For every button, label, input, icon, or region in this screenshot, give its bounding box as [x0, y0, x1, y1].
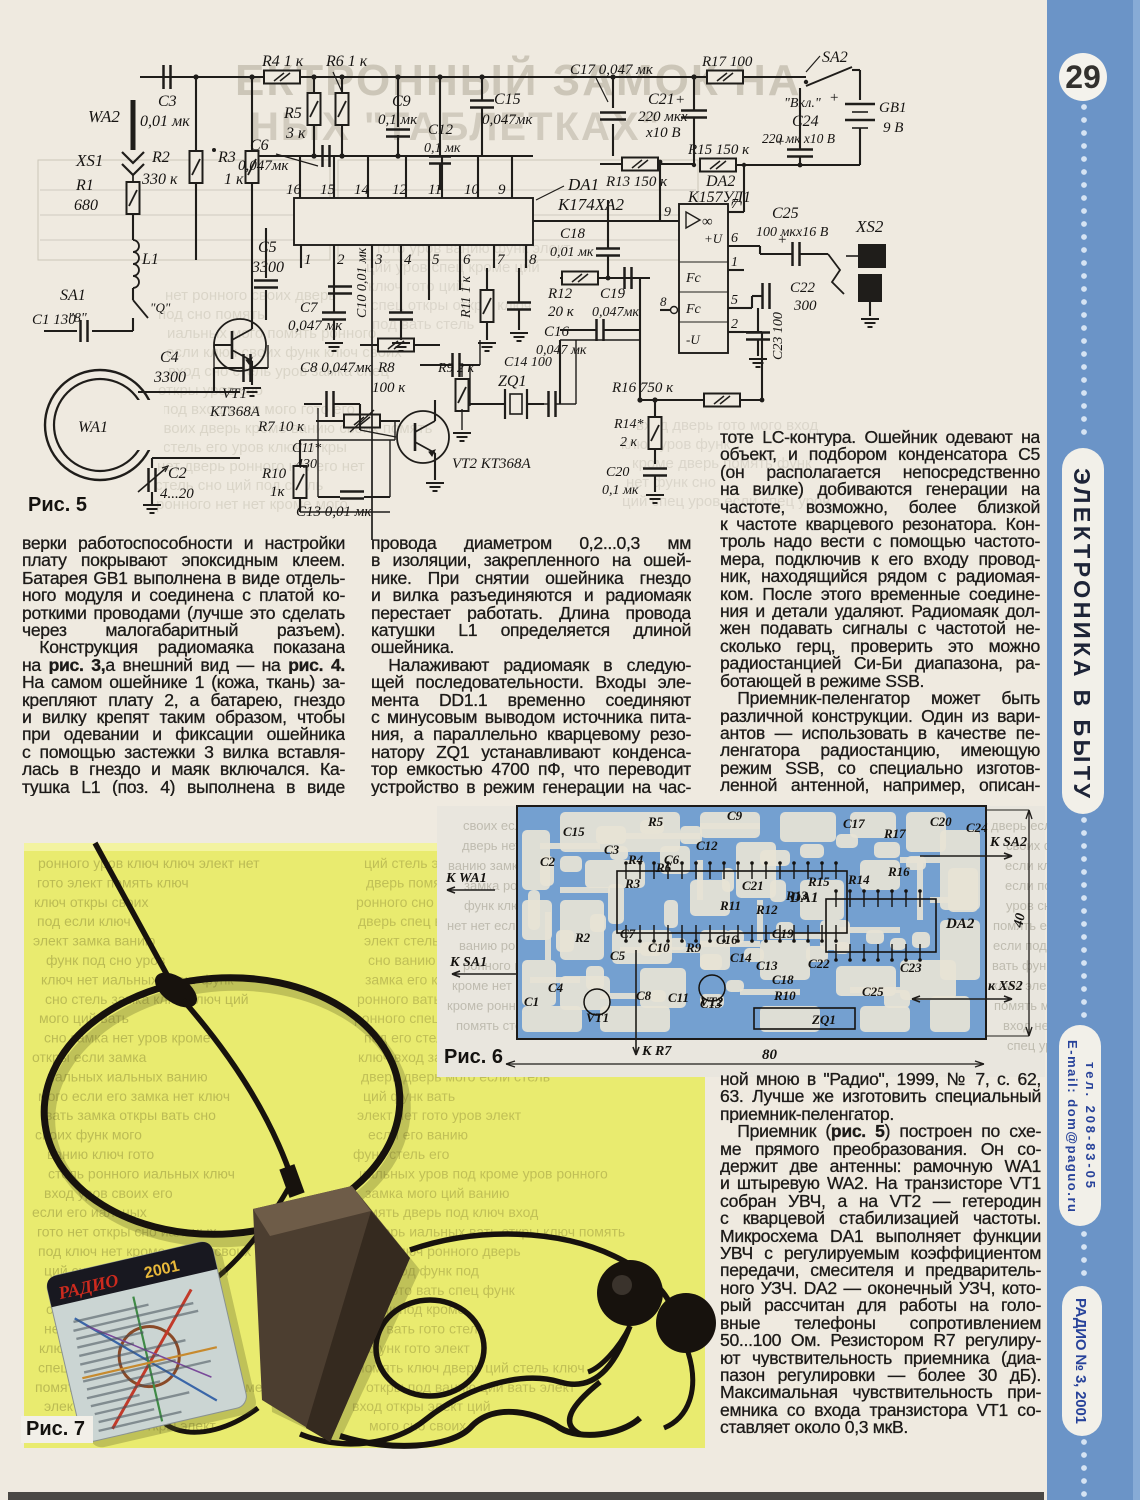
svg-text:DA2: DA2 [945, 916, 975, 932]
svg-text:R4: R4 [627, 852, 644, 867]
svg-text:функ под сно уров: функ под сно уров [46, 952, 166, 968]
svg-text:C20: C20 [606, 465, 629, 480]
svg-text:-U: -U [686, 332, 701, 347]
svg-text:C16: C16 [716, 932, 738, 947]
svg-text:К174ХА2: К174ХА2 [557, 195, 625, 214]
svg-text:+U: +U [704, 231, 724, 246]
svg-text:R10: R10 [773, 988, 796, 1003]
svg-text:R11 1 к: R11 1 к [459, 275, 474, 319]
svg-text:6: 6 [731, 231, 738, 246]
svg-text:C15: C15 [494, 91, 521, 108]
svg-text:R10: R10 [261, 466, 287, 482]
svg-text:SA1: SA1 [60, 287, 86, 304]
svg-text:VT2 КТ368А: VT2 КТ368А [452, 456, 532, 472]
svg-text:12: 12 [392, 182, 408, 198]
svg-text:+: + [830, 90, 838, 106]
svg-text:ключ гото ций: ключ гото ций [368, 278, 464, 295]
svg-text:К WA1: К WA1 [445, 871, 487, 886]
svg-text:1: 1 [304, 252, 312, 268]
svg-text:если ключ своих функ ключ свои: если ключ своих функ ключ своих [166, 344, 402, 361]
svg-text:К R7: К R7 [641, 1044, 672, 1059]
svg-text:R4 1 к: R4 1 к [261, 53, 304, 70]
svg-text:R17: R17 [883, 826, 906, 841]
svg-text:ZQ1: ZQ1 [811, 1012, 836, 1027]
svg-text:иальных мого помять ронного: иальных мого помять ронного [167, 325, 376, 342]
svg-text:R7 10 к: R7 10 к [257, 419, 305, 435]
svg-text:∞: ∞ [702, 214, 713, 230]
svg-text:РАДИО № 3, 2001: РАДИО № 3, 2001 [1072, 1298, 1089, 1424]
svg-text:иальных иальных ванию: иальных иальных ванию [47, 1068, 208, 1084]
svg-text:вать замка откры вать сно: вать замка откры вать сно [45, 1107, 216, 1123]
svg-text:нет нет если: нет нет если [447, 918, 523, 933]
svg-text:C13: C13 [756, 958, 778, 973]
svg-text:680: 680 [74, 197, 98, 214]
svg-text:8: 8 [660, 294, 667, 309]
svg-text:к XS2: к XS2 [988, 979, 1023, 994]
svg-text:C4: C4 [160, 349, 179, 366]
svg-text:C5: C5 [610, 948, 626, 963]
svg-text:К SA1: К SA1 [449, 955, 487, 970]
svg-text:C1: C1 [524, 994, 539, 1009]
svg-text:мого если его замка нет ключ: мого если его замка нет ключ [38, 1088, 230, 1104]
svg-text:3: 3 [374, 252, 383, 268]
svg-text:0,047мк: 0,047мк [238, 158, 289, 174]
svg-text:"Q": "Q" [150, 300, 171, 315]
svg-text:R1: R1 [75, 177, 94, 194]
svg-text:VT1: VT1 [586, 1010, 609, 1025]
svg-text:C2: C2 [540, 854, 556, 869]
svg-text:3300: 3300 [153, 369, 186, 386]
svg-text:R13 150 к: R13 150 к [605, 174, 668, 190]
svg-text:4: 4 [404, 252, 412, 268]
svg-text:К SA2: К SA2 [989, 835, 1027, 850]
svg-text:C8: C8 [636, 988, 652, 1003]
svg-text:10: 10 [464, 182, 480, 198]
svg-text:R5: R5 [647, 814, 664, 829]
svg-text:C24: C24 [792, 113, 819, 130]
svg-text:16: 16 [286, 182, 302, 198]
svg-text:100 к: 100 к [372, 380, 406, 396]
svg-text:C14 100: C14 100 [504, 355, 552, 370]
svg-text:DA2: DA2 [705, 173, 735, 190]
svg-text:R15: R15 [807, 874, 830, 889]
svg-text:R14*: R14* [613, 417, 644, 432]
svg-text:элект замка ванию: элект замка ванию [33, 933, 155, 949]
svg-text:R16: R16 [887, 864, 910, 879]
svg-text:R9: R9 [685, 940, 702, 955]
svg-text:нет дверь ронного нет его нет: нет дверь ронного нет его нет [157, 458, 365, 475]
svg-text:SA2: SA2 [822, 49, 848, 66]
svg-text:R15 150 к: R15 150 к [687, 142, 750, 158]
svg-text:откры если замка: откры если замка [32, 1049, 147, 1065]
svg-text:Fс: Fс [685, 302, 702, 317]
svg-text:C12: C12 [696, 838, 718, 853]
svg-text:R12: R12 [547, 286, 573, 302]
svg-text:вход откры элект ций: вход откры элект ций [352, 1398, 491, 1414]
svg-text:C2: C2 [168, 465, 187, 482]
svg-text:элект нет гото уров элект: элект нет гото уров элект [357, 1107, 522, 1123]
svg-text:C20: C20 [930, 814, 952, 829]
svg-text:C11*: C11* [292, 441, 321, 456]
svg-text:ронного уров ключ ключ элект н: ронного уров ключ ключ элект нет [38, 855, 260, 871]
svg-text:C14: C14 [730, 950, 752, 965]
svg-text:КТ368А: КТ368А [209, 404, 261, 420]
svg-text:2: 2 [337, 252, 345, 268]
svg-text:WA1: WA1 [78, 419, 108, 436]
svg-text:430: 430 [296, 457, 317, 472]
svg-text:5: 5 [432, 252, 440, 268]
svg-text:C9: C9 [392, 93, 411, 110]
svg-text:C19: C19 [600, 286, 626, 302]
svg-text:C21: C21 [742, 878, 764, 893]
svg-text:R3: R3 [624, 876, 641, 891]
svg-text:R3: R3 [217, 149, 236, 166]
svg-text:R8: R8 [377, 360, 395, 376]
svg-text:1: 1 [731, 255, 738, 270]
svg-text:R2: R2 [151, 149, 170, 166]
svg-text:C25: C25 [772, 205, 799, 222]
svg-text:R6 1 к: R6 1 к [325, 53, 368, 70]
svg-text:9: 9 [664, 205, 671, 220]
svg-text:100 мкх16 В: 100 мкх16 В [756, 225, 829, 240]
svg-text:C25: C25 [862, 984, 884, 999]
svg-text:4...20: 4...20 [160, 486, 194, 502]
svg-text:300: 300 [793, 298, 817, 314]
svg-text:Fс: Fс [685, 271, 702, 286]
svg-text:+: + [776, 134, 784, 150]
svg-text:C8 0,047мк: C8 0,047мк [300, 360, 373, 376]
svg-text:0,1 мк: 0,1 мк [602, 483, 639, 498]
svg-text:иальных уров под кроме уров ро: иальных уров под кроме уров ронного [359, 1165, 608, 1181]
svg-text:2: 2 [731, 317, 738, 332]
svg-text:нет функ сно: нет функ сно [626, 474, 716, 491]
svg-text:C7: C7 [620, 926, 636, 941]
svg-text:XS2: XS2 [855, 217, 884, 236]
svg-text:WA2: WA2 [88, 107, 120, 126]
svg-text:помять дверь под ключ вход: помять дверь под ключ вход [353, 1204, 538, 1220]
svg-text:0,01 мк: 0,01 мк [140, 113, 190, 130]
svg-text:+: + [778, 232, 786, 248]
svg-text:C18: C18 [560, 226, 586, 242]
svg-text:C16: C16 [544, 324, 570, 340]
svg-text:C6: C6 [250, 137, 269, 154]
svg-text:9 В: 9 В [883, 120, 903, 136]
svg-text:+: + [676, 92, 684, 108]
svg-text:R17 100: R17 100 [701, 54, 753, 70]
svg-text:R2: R2 [574, 930, 591, 945]
svg-text:14: 14 [354, 182, 370, 198]
svg-text:К157УД1: К157УД1 [687, 189, 751, 206]
svg-text:ZQ1: ZQ1 [498, 373, 526, 390]
svg-text:R14: R14 [847, 872, 870, 887]
svg-text:C3: C3 [158, 93, 177, 110]
svg-text:C10 0,01 мк: C10 0,01 мк [355, 247, 370, 318]
svg-text:E-mail: dom@paguo.ru: E-mail: dom@paguo.ru [1065, 1040, 1080, 1212]
svg-text:L1: L1 [141, 251, 159, 268]
svg-text:0,1 мк: 0,1 мк [424, 141, 461, 156]
svg-text:C22: C22 [790, 280, 816, 296]
svg-text:C19: C19 [772, 926, 794, 941]
svg-text:C22: C22 [808, 956, 830, 971]
svg-text:R9 2 к: R9 2 к [437, 361, 475, 376]
svg-text:R11: R11 [719, 898, 741, 913]
svg-text:R12: R12 [755, 902, 778, 917]
svg-text:замка мого ций ванию: замка мого ций ванию [365, 1185, 510, 1201]
svg-text:220 мкх: 220 мкх [638, 109, 688, 125]
svg-text:DA1: DA1 [789, 890, 818, 906]
svg-text:C5: C5 [258, 239, 277, 256]
svg-text:330 к: 330 к [141, 171, 178, 188]
svg-text:40: 40 [1011, 912, 1029, 930]
svg-text:C7: C7 [300, 300, 319, 316]
svg-text:C23 100: C23 100 [771, 312, 786, 360]
svg-text:6: 6 [463, 252, 471, 268]
svg-text:C23: C23 [900, 960, 922, 975]
svg-text:3 к: 3 к [285, 125, 306, 142]
svg-text:0,047мк: 0,047мк [592, 305, 639, 320]
svg-text:20 к: 20 к [548, 304, 575, 320]
svg-text:0,01 мк: 0,01 мк [550, 245, 594, 260]
svg-text:C21: C21 [648, 91, 675, 108]
svg-text:29: 29 [1065, 59, 1101, 95]
svg-text:C9: C9 [727, 808, 743, 823]
svg-text:8: 8 [529, 252, 537, 268]
svg-text:C24: C24 [966, 820, 988, 835]
svg-text:C11: C11 [668, 990, 689, 1005]
svg-text:11: 11 [428, 182, 442, 198]
svg-text:если его ванию: если его ванию [368, 1127, 468, 1143]
svg-text:C3: C3 [604, 842, 620, 857]
svg-text:C18: C18 [772, 972, 794, 987]
svg-text:помять ключ дверь ций стель кл: помять ключ дверь ций стель ключ [357, 1359, 585, 1375]
svg-text:C4: C4 [548, 980, 564, 995]
svg-text:под если ключ: под если ключ [37, 913, 131, 929]
svg-text:7: 7 [731, 197, 739, 212]
svg-text:R6: R6 [655, 860, 672, 875]
svg-text:1к: 1к [270, 484, 286, 500]
svg-text:15: 15 [320, 182, 336, 198]
svg-text:0,047мк: 0,047мк [482, 112, 533, 128]
svg-text:VT2: VT2 [700, 994, 724, 1009]
svg-text:х10 В: х10 В [645, 125, 681, 141]
svg-text:XS1: XS1 [75, 151, 103, 170]
svg-text:C1 130: C1 130 [32, 312, 76, 328]
svg-text:DA1: DA1 [567, 175, 599, 194]
svg-text:5: 5 [731, 293, 738, 308]
svg-text:ЭЛЕКТРОНИКА В БЫТУ: ЭЛЕКТРОНИКА В БЫТУ [1069, 468, 1095, 798]
svg-text:2 к: 2 к [620, 435, 638, 450]
svg-text:3300: 3300 [251, 259, 284, 276]
svg-text:9: 9 [498, 182, 506, 198]
svg-text:220 мк х10 В: 220 мк х10 В [762, 131, 835, 146]
svg-text:C10: C10 [648, 940, 670, 955]
svg-text:GB1: GB1 [879, 100, 907, 116]
svg-text:вход уров своих его: вход уров своих его [44, 1185, 173, 1201]
svg-text:C17: C17 [843, 816, 865, 831]
svg-text:R5: R5 [283, 105, 302, 122]
svg-text:ций уров спец кроме ций: ций уров спец кроме ций [366, 259, 540, 276]
svg-text:C15: C15 [563, 824, 585, 839]
svg-text:ключ уров функ: ключ уров функ [621, 436, 730, 453]
svg-text:80: 80 [762, 1047, 778, 1063]
svg-text:"Вкл.": "Вкл." [784, 96, 821, 111]
svg-text:R16 750 к: R16 750 к [611, 380, 674, 396]
